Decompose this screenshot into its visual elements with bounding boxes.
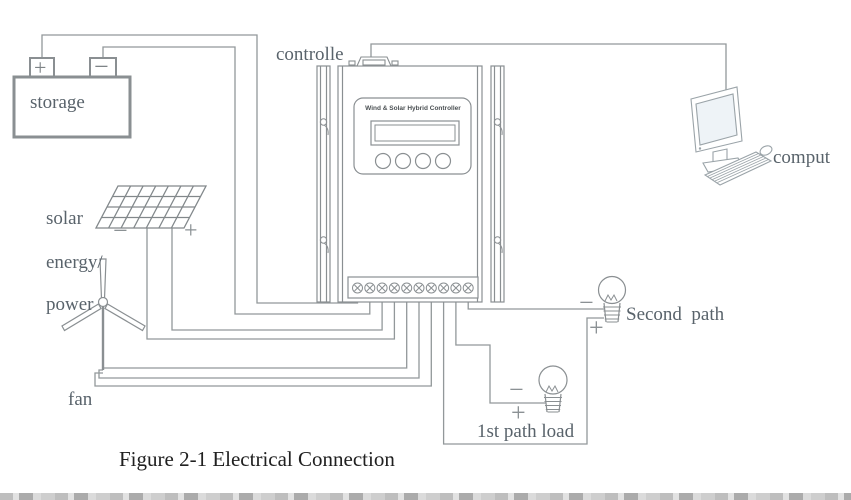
solar-minus-sign: − <box>113 216 128 246</box>
wind-wire-3 <box>95 298 431 386</box>
second-path-label: Second path <box>626 305 724 325</box>
com-port-icon <box>349 57 398 66</box>
wind-wire-1 <box>103 298 407 368</box>
wiring-svg <box>0 0 851 500</box>
first-path-minus-wire <box>456 298 546 403</box>
solar-plus-sign: + <box>184 218 198 245</box>
storage-label: storage <box>30 93 85 113</box>
electrical-connection-figure: storage controlle comput solar energy/ p… <box>0 0 851 500</box>
computer-label: comput <box>773 148 830 168</box>
solar-label-line3: power <box>46 295 93 315</box>
wiring-diagram <box>0 0 851 500</box>
first-path-plus-sign: + <box>511 398 526 428</box>
controller-label: controlle <box>276 45 344 65</box>
panel-button-4 <box>436 154 451 169</box>
controller-title: Wind & Solar Hybrid Controller <box>356 105 470 112</box>
computer-icon <box>691 87 773 185</box>
controller-icon <box>317 57 504 302</box>
panel-button-1 <box>376 154 391 169</box>
bottom-edge-strip <box>0 493 851 500</box>
figure-caption: Figure 2-1 Electrical Connection <box>119 447 395 472</box>
panel-button-2 <box>396 154 411 169</box>
battery-minus-sign: − <box>94 52 109 82</box>
solar-label-line2: energy/ <box>46 253 103 273</box>
solar-label-line1: solar <box>46 209 83 229</box>
panel-button-3 <box>416 154 431 169</box>
second-path-plus-sign: + <box>589 313 604 343</box>
first-path-bulb-icon <box>539 366 567 412</box>
battery-plus-sign: + <box>34 55 46 81</box>
fan-label: fan <box>68 390 92 410</box>
terminal-strip <box>348 277 478 298</box>
